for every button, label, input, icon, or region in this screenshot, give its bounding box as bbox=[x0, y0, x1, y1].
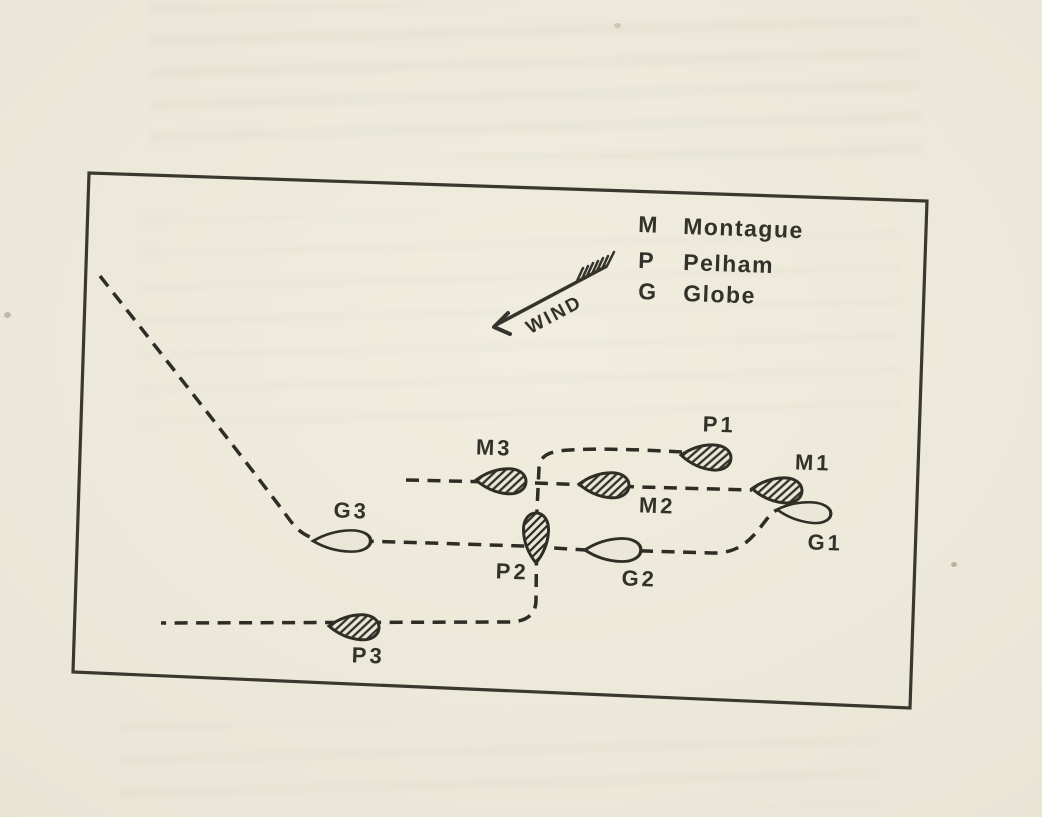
boat-label-m2: M2 bbox=[639, 492, 676, 518]
boat-label-g3: G3 bbox=[333, 497, 369, 523]
boat-label-p3: P3 bbox=[351, 642, 385, 668]
legend-key-pelham: P bbox=[638, 247, 654, 274]
legend-name-montague: Montague bbox=[683, 213, 804, 243]
boat-label-g2: G2 bbox=[621, 565, 657, 591]
book-page: WIND M Montague P Pelham G Globe M1 M2 bbox=[0, 0, 1042, 817]
boat-g2 bbox=[585, 538, 641, 561]
boat-m1 bbox=[751, 476, 802, 504]
boat-p3 bbox=[329, 614, 380, 641]
wind-arrow-feathers bbox=[577, 252, 614, 281]
boat-p2 bbox=[523, 513, 548, 563]
legend-key-globe: G bbox=[638, 278, 657, 305]
legend-name-globe: Globe bbox=[683, 280, 757, 309]
boat-label-p2: P2 bbox=[495, 558, 529, 584]
boat-g3 bbox=[313, 530, 371, 551]
legend-name-pelham: Pelham bbox=[683, 249, 775, 278]
boat-m3 bbox=[476, 468, 527, 495]
wind-indicator: WIND bbox=[494, 252, 614, 339]
boat-label-m1: M1 bbox=[795, 449, 832, 475]
wind-label: WIND bbox=[523, 292, 586, 339]
track-globe bbox=[100, 276, 777, 553]
boat-m2 bbox=[579, 472, 630, 499]
legend: M Montague P Pelham G Globe bbox=[638, 211, 804, 309]
race-diagram: WIND M Montague P Pelham G Globe M1 M2 bbox=[0, 0, 1042, 817]
boat-label-g1: G1 bbox=[807, 529, 843, 555]
boat-tracks bbox=[100, 276, 777, 623]
boat-p1 bbox=[680, 443, 732, 471]
boat-label-p1: P1 bbox=[702, 411, 736, 437]
boat-label-m3: M3 bbox=[476, 434, 513, 460]
legend-key-montague: M bbox=[638, 211, 658, 238]
